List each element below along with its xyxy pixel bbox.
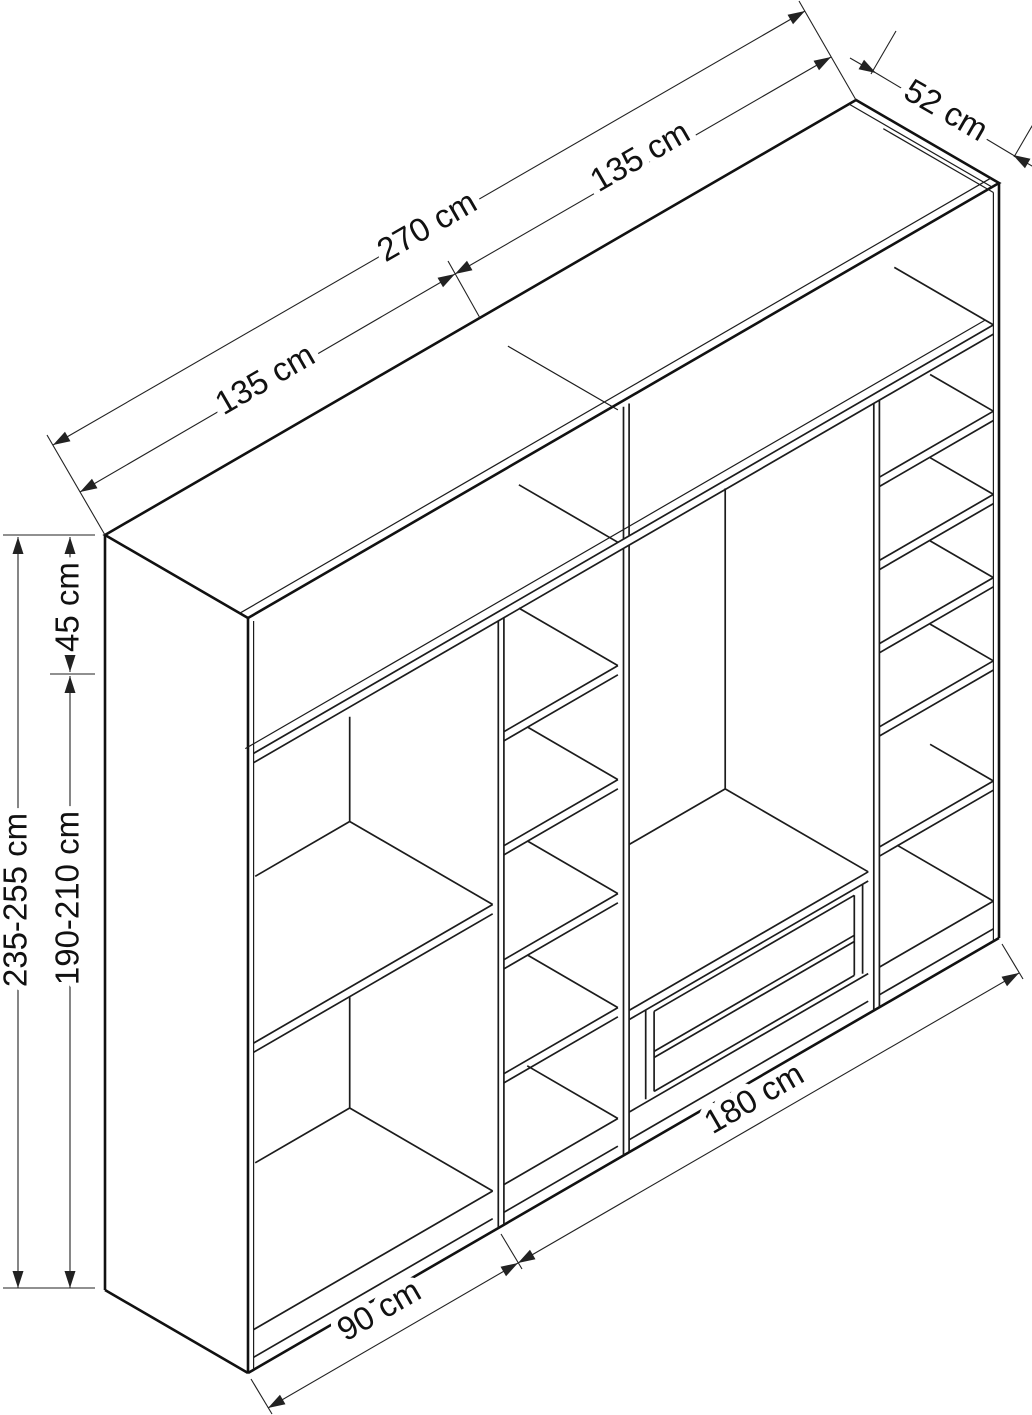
dimension-label-height-total: 235-255 cm (0, 813, 34, 987)
dimension-top-section-height: 45 cm (49, 537, 86, 672)
dimension-height-lower: 190-210 cm (49, 676, 86, 1288)
dimension-bottom-left-width: 90 cm (268, 1263, 518, 1408)
dimension-label-width-right-half: 135 cm (583, 113, 695, 199)
right-column-shelves (879, 375, 993, 902)
middle-column-shelves (504, 608, 618, 1118)
drawing-canvas: 270 cm 135 cm 135 cm 52 cm 45 cm 235-255… (0, 0, 1032, 1415)
dimension-depth: 52 cm (850, 58, 1032, 170)
dimension-width-total: 270 cm (53, 11, 805, 445)
wardrobe-diagram: 270 cm 135 cm 135 cm 52 cm 45 cm 235-255… (0, 0, 1032, 1415)
extension-lines (3, 1, 1032, 1414)
dimension-height-total: 235-255 cm (0, 537, 34, 1288)
dimension-label-width-left-half: 135 cm (208, 336, 320, 422)
dimension-label-depth: 52 cm (898, 71, 994, 148)
dimension-label-width-total: 270 cm (370, 183, 482, 269)
dimension-bottom-right-width: 180 cm (518, 973, 1019, 1263)
dimension-arrowheads (13, 11, 1031, 1408)
dimension-label-height-lower: 190-210 cm (49, 811, 86, 985)
dimension-label-top-section-height: 45 cm (49, 562, 86, 652)
wardrobe-outline (105, 100, 999, 1373)
dimension-width-left-half: 135 cm (80, 274, 455, 492)
top-section (245, 129, 993, 763)
left-compartment-shelves (254, 717, 493, 1191)
dimension-label-bottom-left-width: 90 cm (330, 1271, 426, 1348)
central-section (629, 488, 868, 1019)
partition-walls (498, 400, 879, 1228)
dimension-width-right-half: 135 cm (455, 57, 831, 274)
